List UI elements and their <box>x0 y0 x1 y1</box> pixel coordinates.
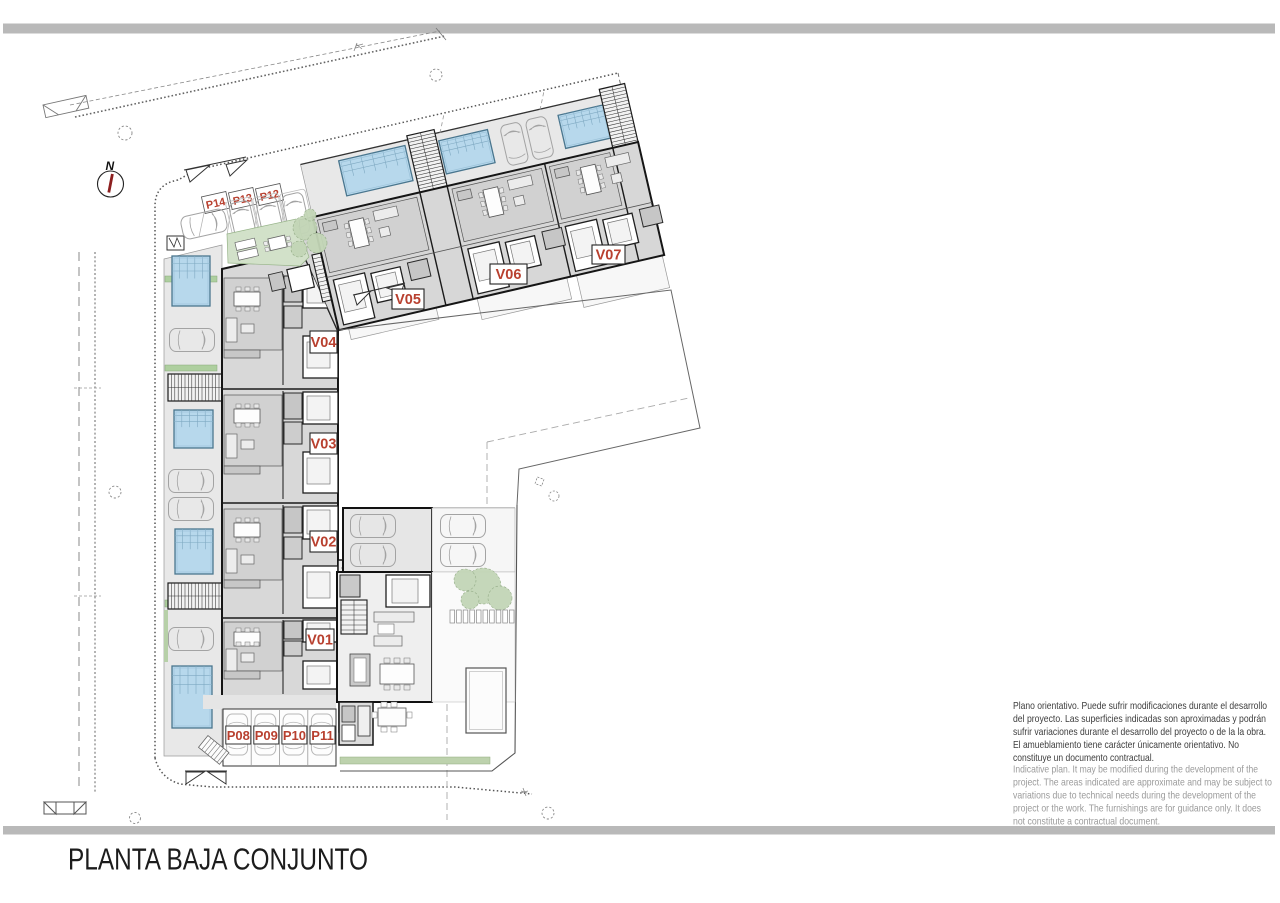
svg-text:V05: V05 <box>395 292 421 308</box>
svg-text:variations due to technical ne: variations due to technical needs during… <box>1013 791 1256 802</box>
svg-text:constituye un documento contra: constituye un documento contractual. <box>1013 753 1154 764</box>
svg-text:Plano orientativo. Puede sufri: Plano orientativo. Puede sufrir modifica… <box>1013 701 1267 712</box>
svg-text:sufrir variaciones durante el: sufrir variaciones durante el desarrollo… <box>1013 727 1266 738</box>
svg-text:V07: V07 <box>596 248 622 264</box>
svg-text:PLANTA BAJA CONJUNTO: PLANTA BAJA CONJUNTO <box>68 843 368 877</box>
svg-text:V02: V02 <box>311 535 337 551</box>
svg-text:P09: P09 <box>255 728 278 743</box>
svg-text:El amueblamiento tiene carácte: El amueblamiento tiene carácter únicamen… <box>1013 740 1239 751</box>
svg-text:V01: V01 <box>307 633 333 649</box>
svg-text:N: N <box>106 159 115 173</box>
svg-text:del proyecto. Las superficies: del proyecto. Las superficies indicadas … <box>1013 714 1266 725</box>
svg-text:P08: P08 <box>227 728 250 743</box>
svg-text:V06: V06 <box>496 267 522 283</box>
svg-text:project. The areas indicated a: project. The areas indicated are approxi… <box>1013 778 1272 789</box>
svg-text:Indicative plan. It may be mod: Indicative plan. It may be modified duri… <box>1013 765 1258 776</box>
svg-text:V04: V04 <box>311 335 337 351</box>
svg-text:project or the work. The furni: project or the work. The furnishings are… <box>1013 804 1261 815</box>
svg-text:V03: V03 <box>311 437 337 453</box>
svg-text:not constitute a contractual d: not constitute a contractual document. <box>1013 817 1160 828</box>
svg-text:P11: P11 <box>311 728 333 743</box>
svg-text:P10: P10 <box>283 728 306 743</box>
